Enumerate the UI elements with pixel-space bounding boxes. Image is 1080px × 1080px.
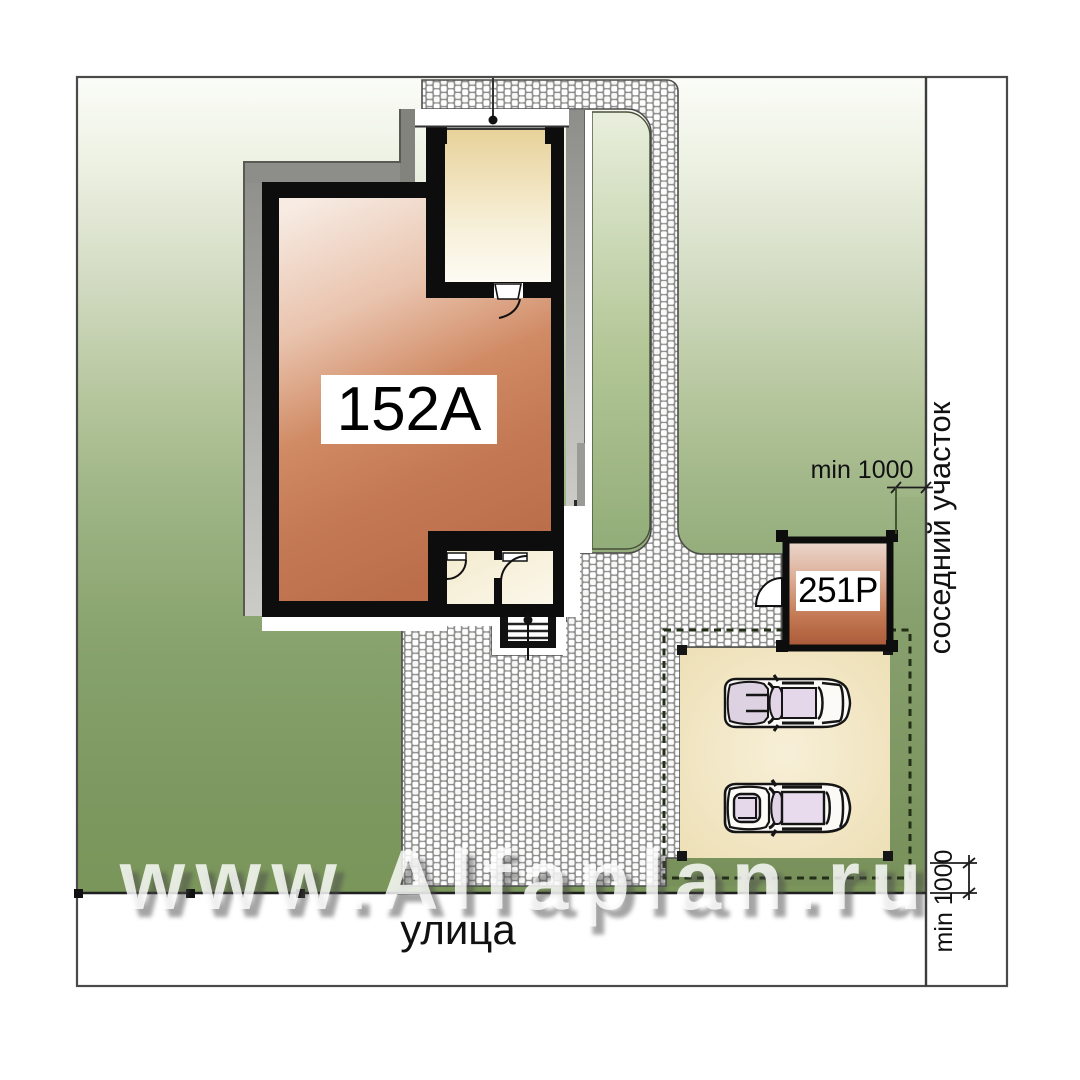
svg-text:соседний участок: соседний участок [922, 401, 957, 654]
svg-text:251P: 251P [798, 571, 878, 610]
svg-text:www.Alfaplan.ru: www.Alfaplan.ru [119, 833, 932, 927]
svg-text:152A: 152A [337, 375, 482, 444]
svg-text:min 1000: min 1000 [811, 456, 914, 484]
